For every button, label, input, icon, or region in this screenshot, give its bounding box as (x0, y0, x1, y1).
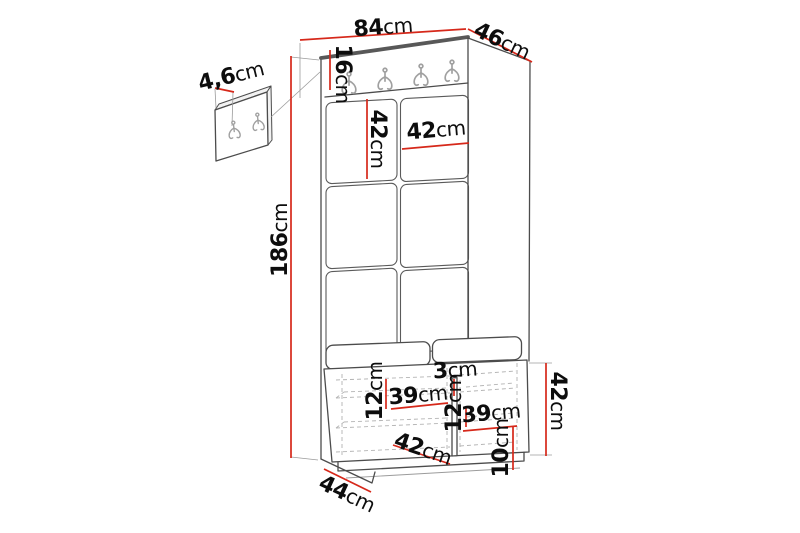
dim-label-bench-depth: 44cm (315, 470, 379, 518)
dim-label-plinth-height: 10cm (489, 418, 514, 477)
detail-connector-line (271, 72, 320, 117)
dim-label-bench-height: 42cm (546, 371, 571, 430)
dim-label-total-depth: 46cm (470, 17, 534, 65)
extension-line (291, 57, 319, 60)
dim-label-panel-thickness: 4,6cm (195, 56, 266, 96)
coat-hook-icon (445, 60, 459, 81)
upholstered-tile (401, 181, 469, 268)
dim-label-total-height: 186cm (268, 203, 293, 277)
dim-label-tile-height: 42cm (366, 109, 391, 168)
drawing-canvas: 84cm 46cm 16cm 4,6cm 42cm 42cm 186cm 3cm… (0, 0, 800, 533)
coat-hook-icon (414, 64, 428, 85)
furniture-dimension-diagram: 84cm 46cm 16cm 4,6cm 42cm 42cm 186cm 3cm… (0, 0, 800, 533)
coat-hook-icon (378, 68, 392, 89)
unit-right-back-edge (529, 61, 530, 361)
dim-label-left-shelf-gap: 12cm (363, 361, 388, 420)
upholstered-tile (326, 183, 397, 269)
extension-line (291, 457, 318, 460)
dim-label-rail-height: 16cm (331, 44, 356, 103)
dim-label-total-width: 84cm (353, 12, 414, 42)
